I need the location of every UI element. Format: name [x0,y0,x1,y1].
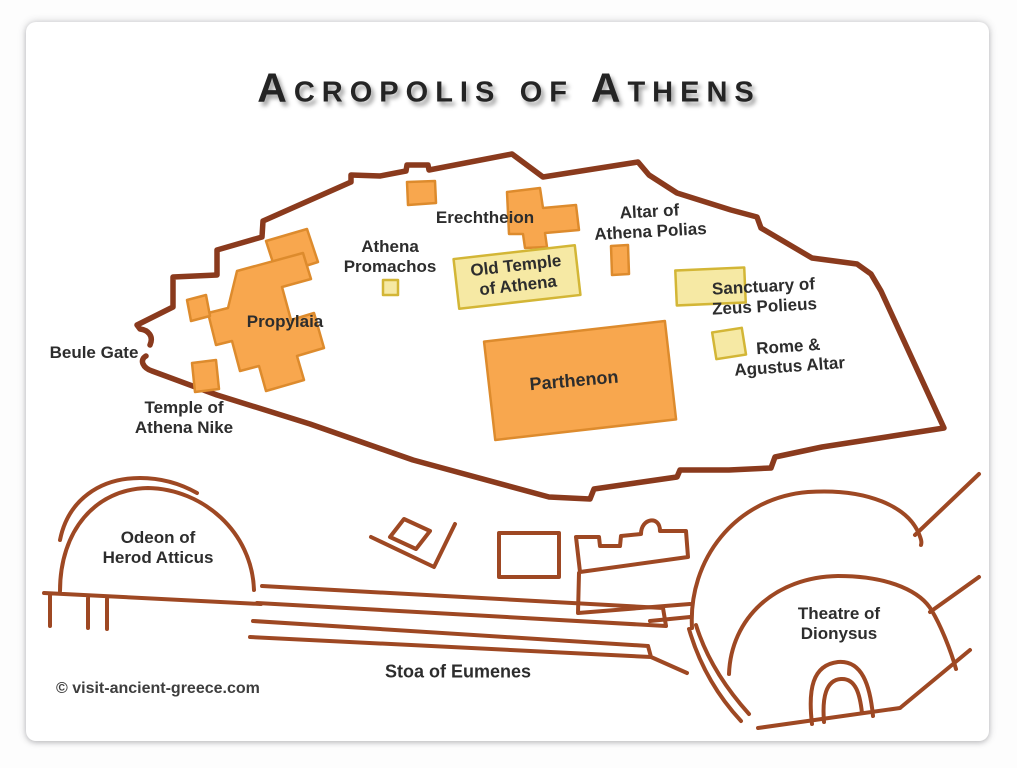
label-parthenon: Parthenon [529,367,620,396]
label-propylaia: Propylaia [247,312,324,332]
label-odeon-herod-atticus: Odeon of Herod Atticus [103,528,214,568]
label-sanctuary-zeus-polieus: Sanctuary of Zeus Polieus [711,274,818,320]
label-stoa-eumenes: Stoa of Eumenes [385,661,531,682]
label-rome-agustus-altar: Rome & Agustus Altar [732,333,845,381]
label-athena-promachos: Athena Promachos [344,237,437,277]
copyright-text: © visit-ancient-greece.com [56,680,260,698]
label-theatre-dionysus: Theatre of Dionysus [798,604,880,644]
labels-layer: Acropolis of Athens Beule Gate Temple of… [0,0,1017,768]
map-title: Acropolis of Athens [257,65,761,112]
map-stage: Acropolis of Athens Beule Gate Temple of… [0,0,1017,768]
label-temple-athena-nike: Temple of Athena Nike [135,398,233,438]
label-altar-athena-polias: Altar of Athena Polias [593,199,707,245]
label-old-temple-of-athena: Old Temple of Athena [469,251,564,301]
label-erechtheion: Erechtheion [436,208,534,228]
label-beule-gate: Beule Gate [50,343,139,363]
